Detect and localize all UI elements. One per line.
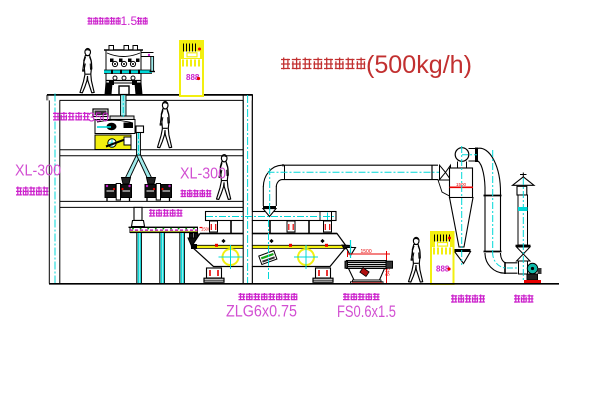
svg-text:ZLG6x0.75: ZLG6x0.75 — [226, 302, 297, 321]
svg-text:1500: 1500 — [361, 249, 372, 255]
svg-text:(500kg/h): (500kg/h) — [366, 51, 472, 79]
svg-text:1.5: 1.5 — [121, 14, 138, 28]
svg-text:350: 350 — [88, 111, 109, 125]
svg-text:XL-300: XL-300 — [180, 166, 226, 183]
svg-text:FS0.6x1.5: FS0.6x1.5 — [337, 302, 396, 321]
svg-text:XL-300: XL-300 — [15, 163, 61, 180]
